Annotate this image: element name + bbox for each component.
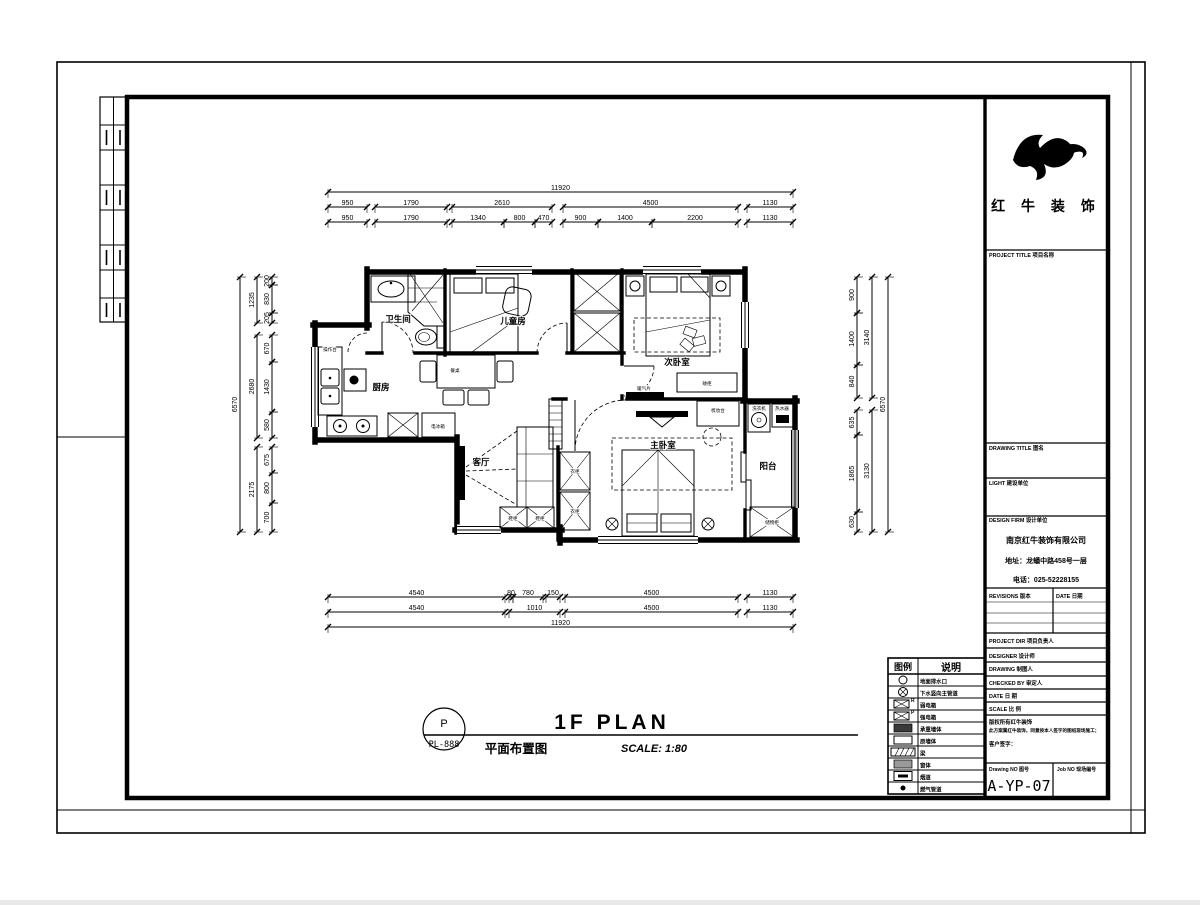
brick-column xyxy=(549,399,562,449)
dimension-value: 1130 xyxy=(762,605,777,612)
legend-header-desc: 说明 xyxy=(941,661,961,674)
dimension-value: 1865 xyxy=(849,466,856,482)
stamp-letter: P xyxy=(440,718,447,730)
furniture xyxy=(318,272,793,536)
dimension-value: 670 xyxy=(264,343,271,355)
drawing-title-en: 1F PLAN xyxy=(554,711,670,734)
revisions-label: REVISIONS 版本 xyxy=(989,592,1031,600)
furniture-label-dresser: 梳妆台 xyxy=(711,407,725,414)
scale-label: SCALE 比 例 xyxy=(989,705,1022,713)
legend-item-label: 燃气管道 xyxy=(920,786,942,794)
dimension-value: 11920 xyxy=(551,185,570,192)
stamp-number: PL-888 xyxy=(429,740,460,750)
dimension-value: 900 xyxy=(849,289,856,301)
sofa xyxy=(517,427,553,507)
dimension-value: 1790 xyxy=(403,215,419,222)
walls xyxy=(313,269,797,543)
kitchen-counter xyxy=(318,347,342,415)
legend-item-label: 下水竖向主管道 xyxy=(920,690,958,698)
scale-note: SCALE: 1:80 xyxy=(621,743,688,755)
dimension-value: 4540 xyxy=(409,605,425,612)
dimension-value: 11920 xyxy=(551,620,570,627)
dimension-value: 1130 xyxy=(762,200,777,207)
legend-symbol-mark: P xyxy=(911,710,915,716)
company-logo-icon xyxy=(1013,135,1087,180)
date-label: DATE 日 期 xyxy=(989,692,1018,700)
project-title-label: PROJECT TITLE 项目名称 xyxy=(989,251,1055,259)
legend-item-label: 强电箱 xyxy=(920,714,937,722)
dimension-value: 6570 xyxy=(232,397,239,413)
firm-address: 地址：龙蟠中路458号一层 xyxy=(1005,556,1087,565)
dimension-value: 2175 xyxy=(249,482,256,498)
checked-by-label: CHECKED BY 审定人 xyxy=(989,679,1043,687)
drawing-title-cn: 平面布置图 xyxy=(485,741,548,756)
dimension-value: 2610 xyxy=(494,200,510,207)
furniture-label-water-heater: 热水器 xyxy=(775,405,789,412)
dimension-value: 4540 xyxy=(409,590,425,597)
dimension-value: 900 xyxy=(575,215,587,222)
nightstand xyxy=(626,276,644,296)
legend-item-label: 梁 xyxy=(919,750,926,758)
dimension-value: 150 xyxy=(547,590,559,597)
drawing-no-label: Drawing NO 图号 xyxy=(989,766,1029,773)
dimension-value: 1130 xyxy=(762,590,777,597)
room-label-kitchen: 厨房 xyxy=(372,382,389,392)
legend-item-label: 地面排水口 xyxy=(920,678,947,686)
sliding-door xyxy=(741,452,746,482)
furniture-label-wardrobe: 衣柜 xyxy=(570,508,580,515)
dimension-value: 635 xyxy=(849,417,856,429)
revisions-date-label: DATE 日期 xyxy=(1056,592,1083,600)
dimension-value: 4500 xyxy=(644,605,660,612)
designer-label: DESIGNER 设计师 xyxy=(989,652,1035,660)
dimension-value: 4500 xyxy=(644,590,660,597)
legend-item-label: 承重墙体 xyxy=(920,726,942,734)
legend-item-label: 烟道 xyxy=(920,774,931,782)
room-label-balcony: 阳台 xyxy=(759,461,777,471)
dimension-value: 840 xyxy=(849,376,856,388)
furniture-label-storage: 储物柜 xyxy=(765,519,779,526)
dimension-value: 675 xyxy=(264,454,271,466)
dimension-value: 470 xyxy=(538,215,550,222)
job-no-label: Job NO 现场编号 xyxy=(1057,766,1096,773)
dimension-value: 1430 xyxy=(264,379,271,395)
dimension-value: 780 xyxy=(522,590,534,597)
tv xyxy=(636,411,688,417)
room-label-kids: 儿童房 xyxy=(499,316,526,326)
dimension-value: 800 xyxy=(264,482,271,494)
dimension-value: 1400 xyxy=(849,331,856,347)
gas-pipe-icon xyxy=(350,376,359,385)
dimension-value: 800 xyxy=(514,215,526,222)
second-bed xyxy=(646,274,710,356)
dimension-value: 950 xyxy=(342,215,354,222)
drawing-title-area: P PL-888 1F PLAN 平面布置图 SCALE: 1:80 xyxy=(423,708,858,756)
drawing-by-label: DRAWING 制图人 xyxy=(989,665,1033,673)
furniture-label-wardrobe: 衣柜 xyxy=(570,468,580,475)
tv xyxy=(459,446,465,500)
furniture-label-low-cabinet: 矮柜 xyxy=(702,380,712,387)
drawing-title-label: DRAWING TITLE 图名 xyxy=(989,444,1044,452)
legend-header-symbol: 图例 xyxy=(894,661,912,672)
furniture-label-counter: 操作台 xyxy=(323,346,337,353)
client-label: LIGHT 建设单位 xyxy=(989,479,1029,487)
drawing-number: A-YP-07 xyxy=(987,777,1050,795)
legend-item-label: 弱电箱 xyxy=(920,702,937,710)
furniture-label-shoe-cabinet: 鞋柜 xyxy=(535,515,545,522)
furniture-label-dining-table: 餐桌 xyxy=(450,367,460,374)
project-dir-label: PROJECT DIR 项目负责人 xyxy=(989,637,1054,645)
furniture-label-fridge: 电冰箱 xyxy=(431,423,445,430)
dimension-value: 1235 xyxy=(249,292,256,308)
legend-item-label: 窗体 xyxy=(920,762,931,770)
dimension-value: 630 xyxy=(849,516,856,528)
room-label-master: 主卧室 xyxy=(650,440,676,450)
dimension-value: 1400 xyxy=(617,215,633,222)
copyright-line2: 此方案属红牛装饰，同意按本人签字的图纸现场施工； xyxy=(989,727,1099,734)
title-block: 红 牛 装 饰 PROJECT TITLE 项目名称 DRAWING TITLE… xyxy=(987,135,1100,795)
furniture-label-shoe-cabinet: 鞋柜 xyxy=(508,515,518,522)
dimension-value: 950 xyxy=(342,200,354,207)
furniture-label-radiator: 暖气片 xyxy=(637,385,651,392)
design-firm-label: DESIGN FIRM 设计单位 xyxy=(989,516,1048,524)
inner-frame xyxy=(127,97,1108,798)
room-label-living: 客厅 xyxy=(471,457,490,467)
room-label-bathroom: 卫生间 xyxy=(385,314,411,324)
legend-symbol-mark: R xyxy=(911,698,915,704)
dimension-value: 3140 xyxy=(864,330,871,346)
room-label-second-bedroom: 次卧室 xyxy=(664,357,690,367)
legend-table: 图例 说明 xyxy=(894,661,961,674)
floor-plan-drawing: 1192095017902610450011309501790134080047… xyxy=(0,0,1200,900)
copyright-line1: 版权所有红牛装饰 xyxy=(988,718,1033,726)
door-arcs xyxy=(348,322,654,451)
company-name: 红 牛 装 饰 xyxy=(991,198,1101,214)
legend-item-label: 原墙体 xyxy=(920,738,937,746)
kids-chair xyxy=(501,286,532,318)
dimension-value: 1130 xyxy=(762,215,777,222)
dimension-value: 6570 xyxy=(880,397,887,413)
dimension-value: 1010 xyxy=(527,605,543,612)
dresser xyxy=(697,401,739,426)
dimension-value: 1790 xyxy=(403,200,419,207)
firm-phone: 电话：025-52228155 xyxy=(1013,575,1079,584)
furniture-label-washer: 洗衣机 xyxy=(752,405,766,412)
dimension-value: 580 xyxy=(264,419,271,431)
dimension-value: 700 xyxy=(264,512,271,524)
drawing-sheet: 1192095017902610450011309501790134080047… xyxy=(0,0,1200,900)
dimension-value: 2200 xyxy=(687,215,703,222)
copyright-line3: 客户签字： xyxy=(989,740,1016,748)
dimension-value: 2680 xyxy=(249,379,256,395)
dimension-value: 4500 xyxy=(643,200,659,207)
dimension-value: 1340 xyxy=(470,215,486,222)
dimension-value: 205 xyxy=(264,312,271,324)
nightstand xyxy=(712,276,730,296)
generated-drawing: 1192095017902610450011309501790134080047… xyxy=(100,97,1108,798)
dimension-value: 830 xyxy=(264,293,271,305)
firm-name: 南京红牛装饰有限公司 xyxy=(1006,535,1086,545)
dimension-value: 3130 xyxy=(864,463,871,479)
dining-table xyxy=(437,355,495,388)
